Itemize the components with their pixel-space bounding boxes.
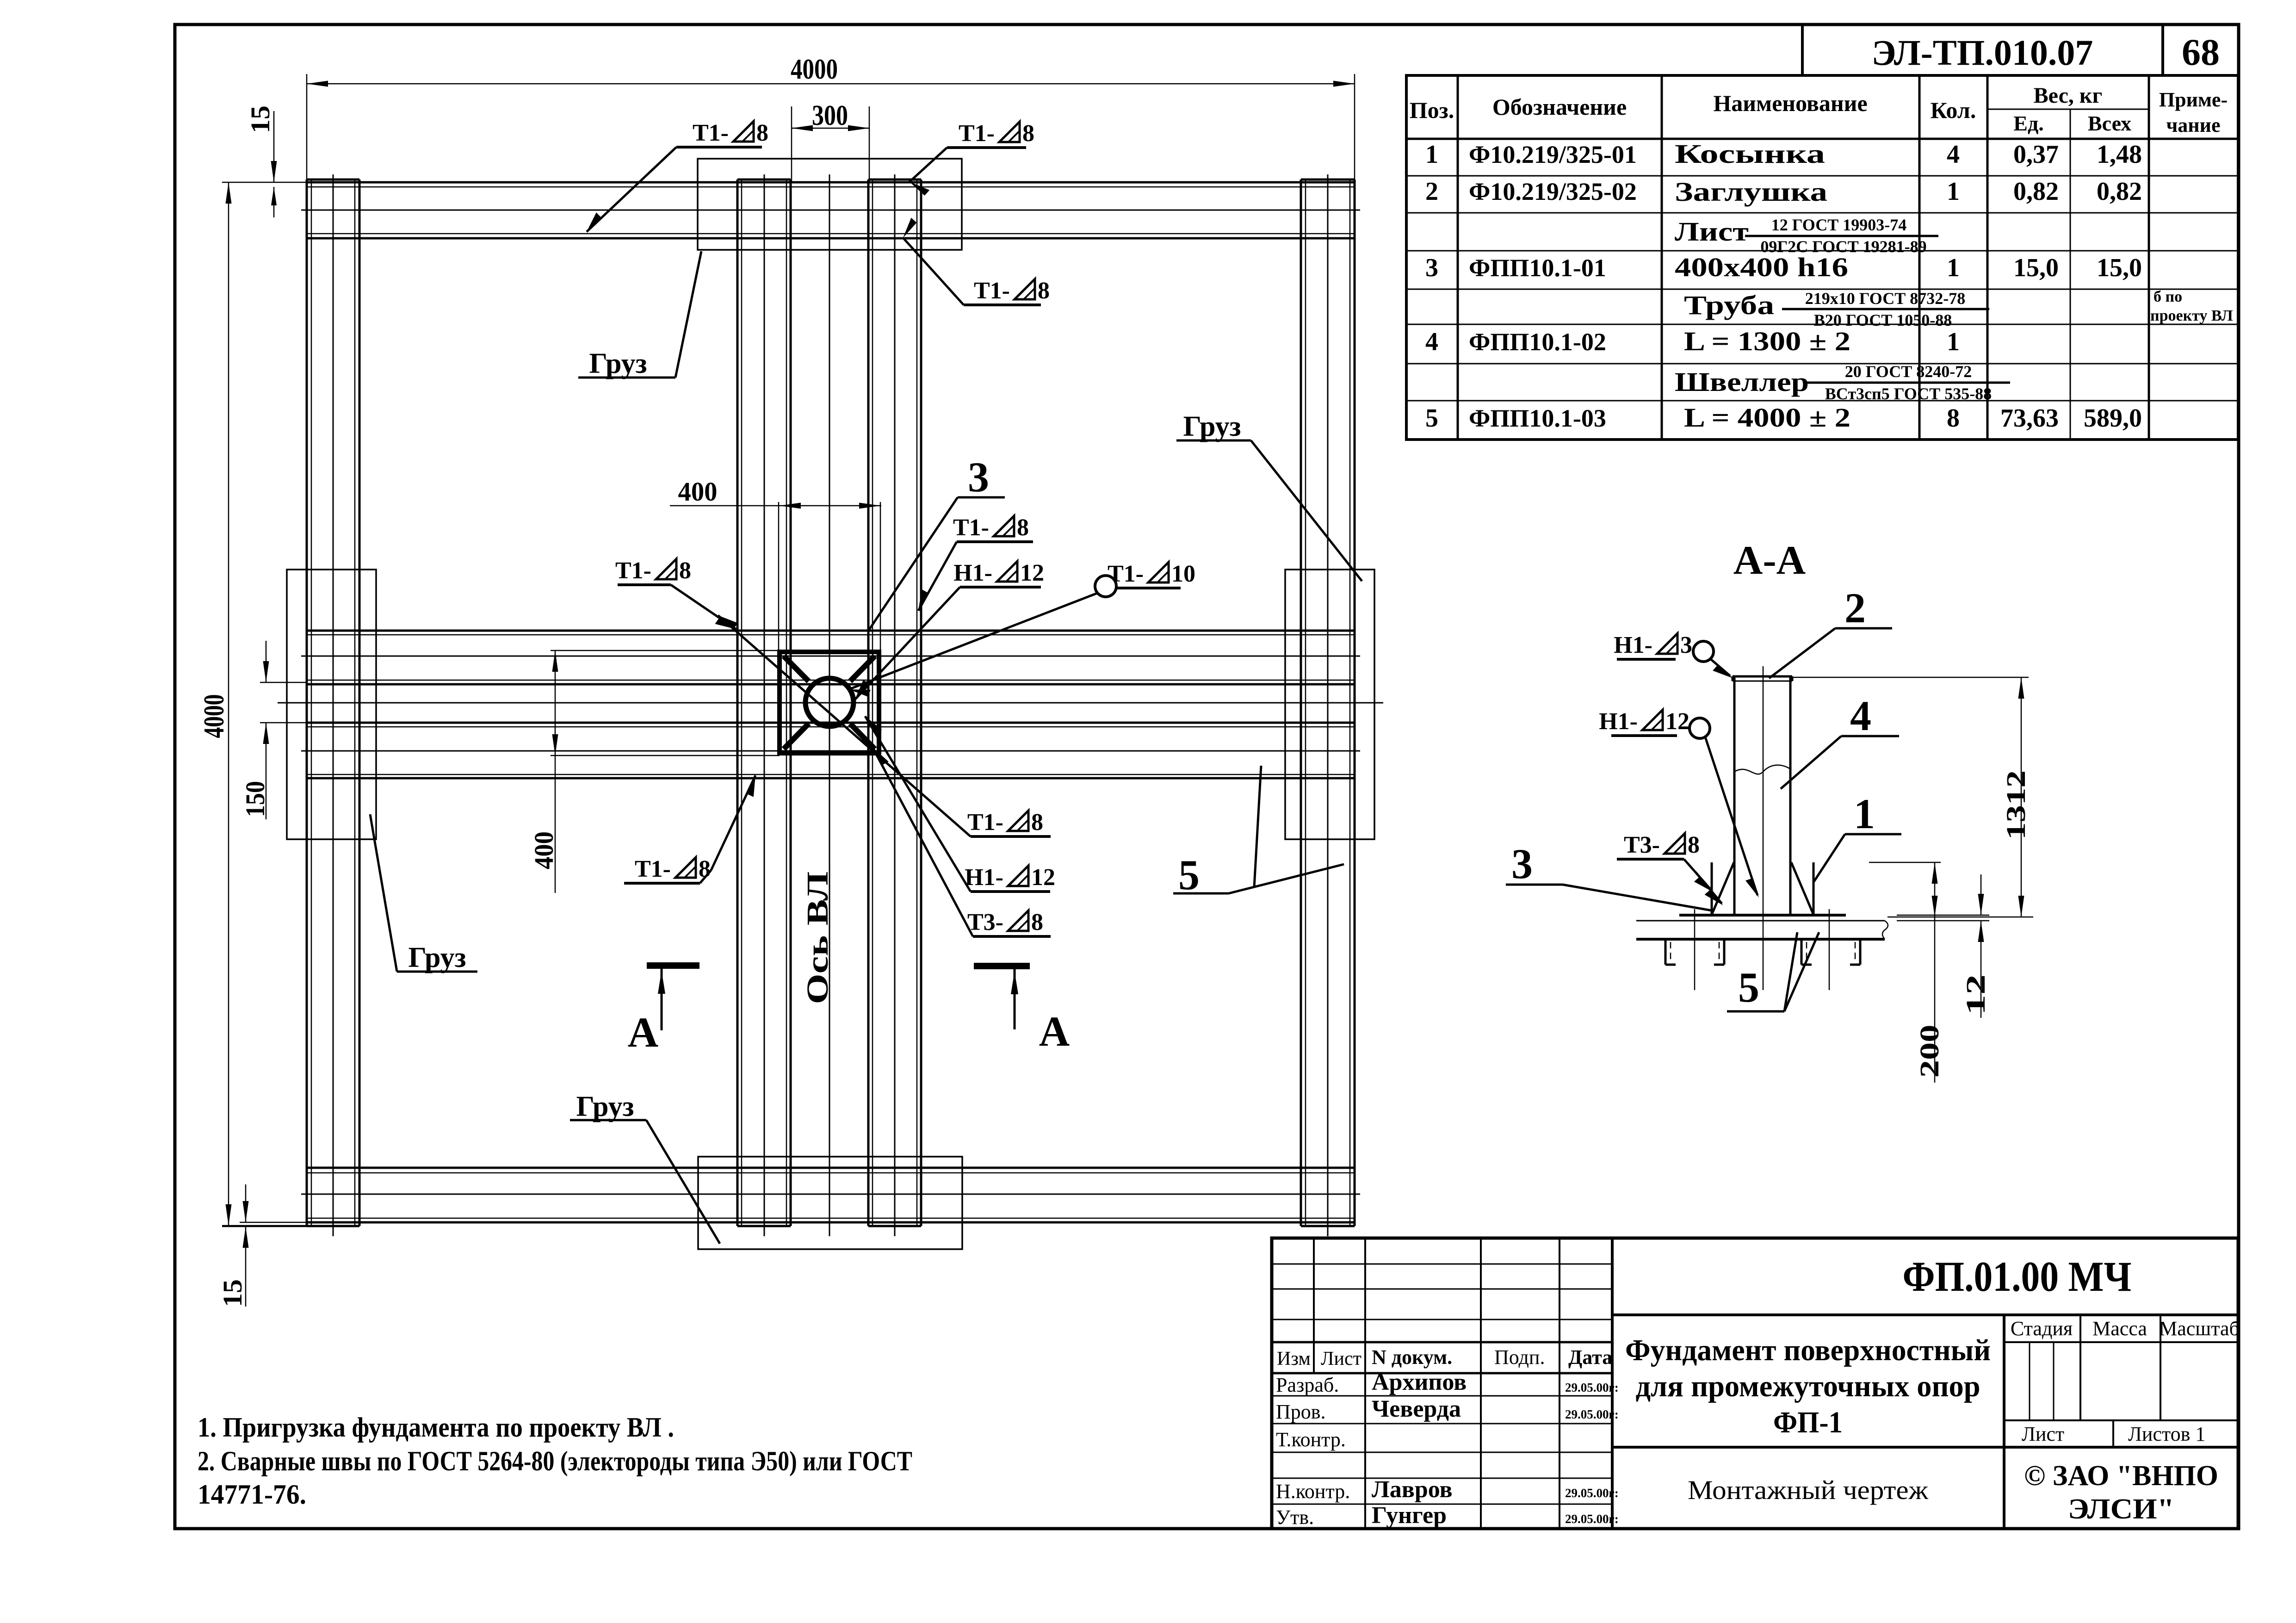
svg-text:Косынка: Косынка	[1675, 139, 1825, 169]
svg-text:Ф10.219/325-01: Ф10.219/325-01	[1469, 141, 1637, 168]
svg-text:8: 8	[1022, 120, 1034, 147]
svg-text:проекту ВЛ: проекту ВЛ	[2150, 307, 2233, 324]
svg-text:А: А	[1039, 1008, 1070, 1055]
svg-text:8: 8	[1031, 809, 1043, 836]
svg-text:Швеллер: Швеллер	[1675, 367, 1809, 397]
svg-text:Ось ВЛ: Ось ВЛ	[801, 872, 835, 1004]
svg-text:Подп.: Подп.	[1494, 1346, 1545, 1369]
svg-text:3: 3	[1511, 840, 1533, 887]
svg-text:Вес, кг: Вес, кг	[2034, 83, 2103, 108]
svg-text:12: 12	[1020, 560, 1044, 586]
svg-text:для промежуточных опор: для промежуточных опор	[1636, 1369, 1980, 1403]
svg-text:Лист: Лист	[2022, 1423, 2064, 1445]
svg-text:Т1-: Т1-	[974, 278, 1010, 304]
svg-text:ФПП10.1-03: ФПП10.1-03	[1469, 404, 1606, 432]
svg-text:Лист: Лист	[1321, 1348, 1362, 1369]
svg-text:Чеверда: Чеверда	[1372, 1396, 1461, 1422]
svg-text:5: 5	[1178, 851, 1200, 898]
svg-text:8: 8	[756, 120, 768, 146]
svg-text:4: 4	[1425, 328, 1438, 356]
svg-text:Обозначение: Обозначение	[1492, 94, 1627, 120]
svg-text:14771-76.: 14771-76.	[198, 1479, 306, 1510]
svg-text:Дата: Дата	[1568, 1346, 1612, 1369]
svg-text:15: 15	[245, 105, 275, 133]
svg-text:8: 8	[1688, 832, 1700, 858]
svg-text:Т1-: Т1-	[615, 558, 651, 584]
svg-text:3: 3	[968, 453, 989, 501]
svg-text:15: 15	[217, 1279, 248, 1307]
svg-text:8: 8	[1017, 514, 1029, 541]
svg-text:4000: 4000	[791, 54, 838, 85]
svg-text:Гунгер: Гунгер	[1372, 1502, 1447, 1529]
svg-text:2: 2	[1844, 584, 1866, 632]
svg-text:1312: 1312	[2001, 770, 2031, 840]
svg-text:Т.контр.: Т.контр.	[1276, 1428, 1346, 1451]
svg-text:73,63: 73,63	[2000, 404, 2059, 433]
svg-text:2: 2	[1425, 177, 1438, 206]
svg-text:Т1-: Т1-	[635, 856, 671, 882]
svg-text:300: 300	[812, 100, 848, 131]
svg-text:Масштаб: Масштаб	[2159, 1317, 2240, 1340]
svg-text:© ЗАО "ВНПО: © ЗАО "ВНПО	[2024, 1460, 2218, 1492]
svg-text:219х10 ГОСТ 8732-78: 219х10 ГОСТ 8732-78	[1805, 289, 1965, 308]
svg-text:4: 4	[1850, 692, 1871, 739]
svg-text:ЭЛСИ": ЭЛСИ"	[2068, 1493, 2174, 1525]
svg-text:20 ГОСТ 8240-72: 20 ГОСТ 8240-72	[1845, 362, 1972, 381]
svg-text:Груз: Груз	[589, 348, 647, 379]
svg-text:1. Пригрузка фундамента по про: 1. Пригрузка фундамента по проекту ВЛ .	[198, 1412, 674, 1443]
svg-text:400: 400	[678, 477, 718, 507]
svg-text:29.05.00г:: 29.05.00г:	[1565, 1512, 1619, 1526]
svg-text:Н1-: Н1-	[1614, 632, 1652, 658]
svg-text:5: 5	[1425, 404, 1438, 433]
svg-text:400х400 h16: 400х400 h16	[1675, 252, 1848, 282]
svg-text:Груз: Груз	[1183, 411, 1241, 442]
svg-text:3: 3	[1425, 254, 1438, 282]
svg-text:29.05.00г:: 29.05.00г:	[1565, 1486, 1619, 1500]
svg-text:15,0: 15,0	[2097, 254, 2142, 282]
svg-text:Н1-: Н1-	[953, 560, 992, 586]
svg-text:200: 200	[1914, 1025, 1944, 1078]
svg-text:8: 8	[1031, 909, 1043, 935]
svg-text:Наименование: Наименование	[1713, 90, 1867, 116]
svg-text:0,82: 0,82	[2013, 177, 2059, 206]
svg-text:ФПП10.1-01: ФПП10.1-01	[1469, 254, 1606, 282]
svg-text:1: 1	[1947, 328, 1960, 356]
svg-text:Стадия: Стадия	[2011, 1317, 2073, 1340]
svg-text:2. Сварные швы по ГОСТ 5264-8: 2. Сварные швы по ГОСТ 5264-80 (электоро…	[198, 1446, 912, 1476]
svg-text:ЭЛ-ТП.010.07: ЭЛ-ТП.010.07	[1872, 32, 2093, 73]
svg-text:1: 1	[1947, 177, 1960, 206]
svg-text:А-А: А-А	[1733, 538, 1806, 583]
svg-text:Т1-: Т1-	[693, 120, 729, 146]
svg-text:Т1-: Т1-	[967, 809, 1003, 836]
svg-text:8: 8	[1947, 404, 1960, 433]
svg-text:589,0: 589,0	[2084, 404, 2142, 433]
svg-text:чание: чание	[2166, 114, 2220, 136]
svg-text:4: 4	[1947, 140, 1960, 169]
svg-text:Н.контр.: Н.контр.	[1276, 1480, 1350, 1503]
svg-text:29.05.00г:: 29.05.00г:	[1565, 1381, 1619, 1394]
svg-text:Архипов: Архипов	[1372, 1369, 1467, 1395]
svg-text:Поз.: Поз.	[1410, 97, 1454, 123]
svg-text:Разраб.: Разраб.	[1276, 1374, 1339, 1396]
svg-text:б по: б по	[2154, 288, 2182, 305]
svg-text:L = 1300 ± 2: L = 1300 ± 2	[1684, 326, 1850, 356]
svg-text:Труба: Труба	[1684, 290, 1774, 320]
svg-text:Лист: Лист	[1675, 217, 1749, 247]
svg-text:Всех: Всех	[2088, 112, 2131, 135]
svg-text:1: 1	[1947, 254, 1960, 282]
svg-text:12: 12	[1665, 708, 1690, 735]
svg-text:ФП-1: ФП-1	[1773, 1406, 1843, 1439]
svg-text:12: 12	[1961, 974, 1991, 1015]
svg-text:3: 3	[1680, 632, 1692, 658]
svg-text:4000: 4000	[198, 694, 230, 738]
svg-text:L = 4000 ± 2: L = 4000 ± 2	[1684, 403, 1850, 433]
svg-text:Т1-: Т1-	[953, 514, 989, 541]
svg-text:N докум.: N докум.	[1372, 1346, 1452, 1369]
svg-text:12 ГОСТ 19903-74: 12 ГОСТ 19903-74	[1771, 216, 1906, 234]
svg-text:Приме-: Приме-	[2159, 88, 2228, 111]
svg-text:400: 400	[529, 831, 559, 869]
svg-text:12: 12	[1031, 864, 1055, 891]
svg-text:1: 1	[1425, 140, 1438, 169]
svg-text:Н1-: Н1-	[1599, 708, 1638, 735]
svg-text:150: 150	[240, 781, 270, 817]
svg-text:0,37: 0,37	[2013, 140, 2059, 169]
svg-text:10: 10	[1171, 561, 1195, 587]
svg-text:1: 1	[1854, 790, 1875, 837]
svg-text:Кол.: Кол.	[1931, 97, 1976, 123]
svg-text:ВСт3сп5 ГОСТ 535-88: ВСт3сп5 ГОСТ 535-88	[1825, 384, 1992, 403]
svg-text:Листов 1: Листов 1	[2128, 1423, 2205, 1445]
svg-text:Т3-: Т3-	[967, 909, 1003, 935]
svg-text:Пров.: Пров.	[1276, 1400, 1326, 1423]
svg-text:68: 68	[2182, 31, 2220, 73]
svg-text:15,0: 15,0	[2013, 254, 2059, 282]
svg-text:29.05.00г:: 29.05.00г:	[1565, 1407, 1619, 1421]
svg-text:0,82: 0,82	[2097, 177, 2142, 206]
svg-text:8: 8	[1038, 278, 1050, 304]
svg-text:Изм: Изм	[1277, 1348, 1311, 1369]
svg-text:Ф10.219/325-02: Ф10.219/325-02	[1469, 178, 1637, 205]
svg-text:Лавров: Лавров	[1372, 1476, 1453, 1503]
svg-text:Фундамент поверхностный: Фундамент поверхностный	[1625, 1333, 1991, 1367]
svg-text:Груз: Груз	[408, 942, 466, 973]
svg-text:5: 5	[1738, 964, 1759, 1011]
svg-text:Ед.: Ед.	[2013, 112, 2043, 135]
svg-text:Утв.: Утв.	[1276, 1506, 1314, 1529]
svg-text:Груз: Груз	[576, 1091, 634, 1122]
svg-text:Масса: Масса	[2092, 1317, 2147, 1340]
svg-text:Заглушка: Заглушка	[1675, 177, 1827, 207]
svg-text:1,48: 1,48	[2097, 140, 2142, 169]
svg-text:А: А	[628, 1009, 658, 1056]
svg-text:Н1-: Н1-	[965, 864, 1003, 891]
svg-text:Т1-: Т1-	[959, 120, 995, 147]
svg-text:ФПП10.1-02: ФПП10.1-02	[1469, 328, 1606, 356]
svg-text:Т3-: Т3-	[1624, 832, 1660, 858]
svg-text:8: 8	[679, 558, 691, 584]
svg-text:ФП.01.00 МЧ: ФП.01.00 МЧ	[1903, 1253, 2132, 1300]
svg-text:Монтажный чертеж: Монтажный чертеж	[1688, 1475, 1929, 1505]
